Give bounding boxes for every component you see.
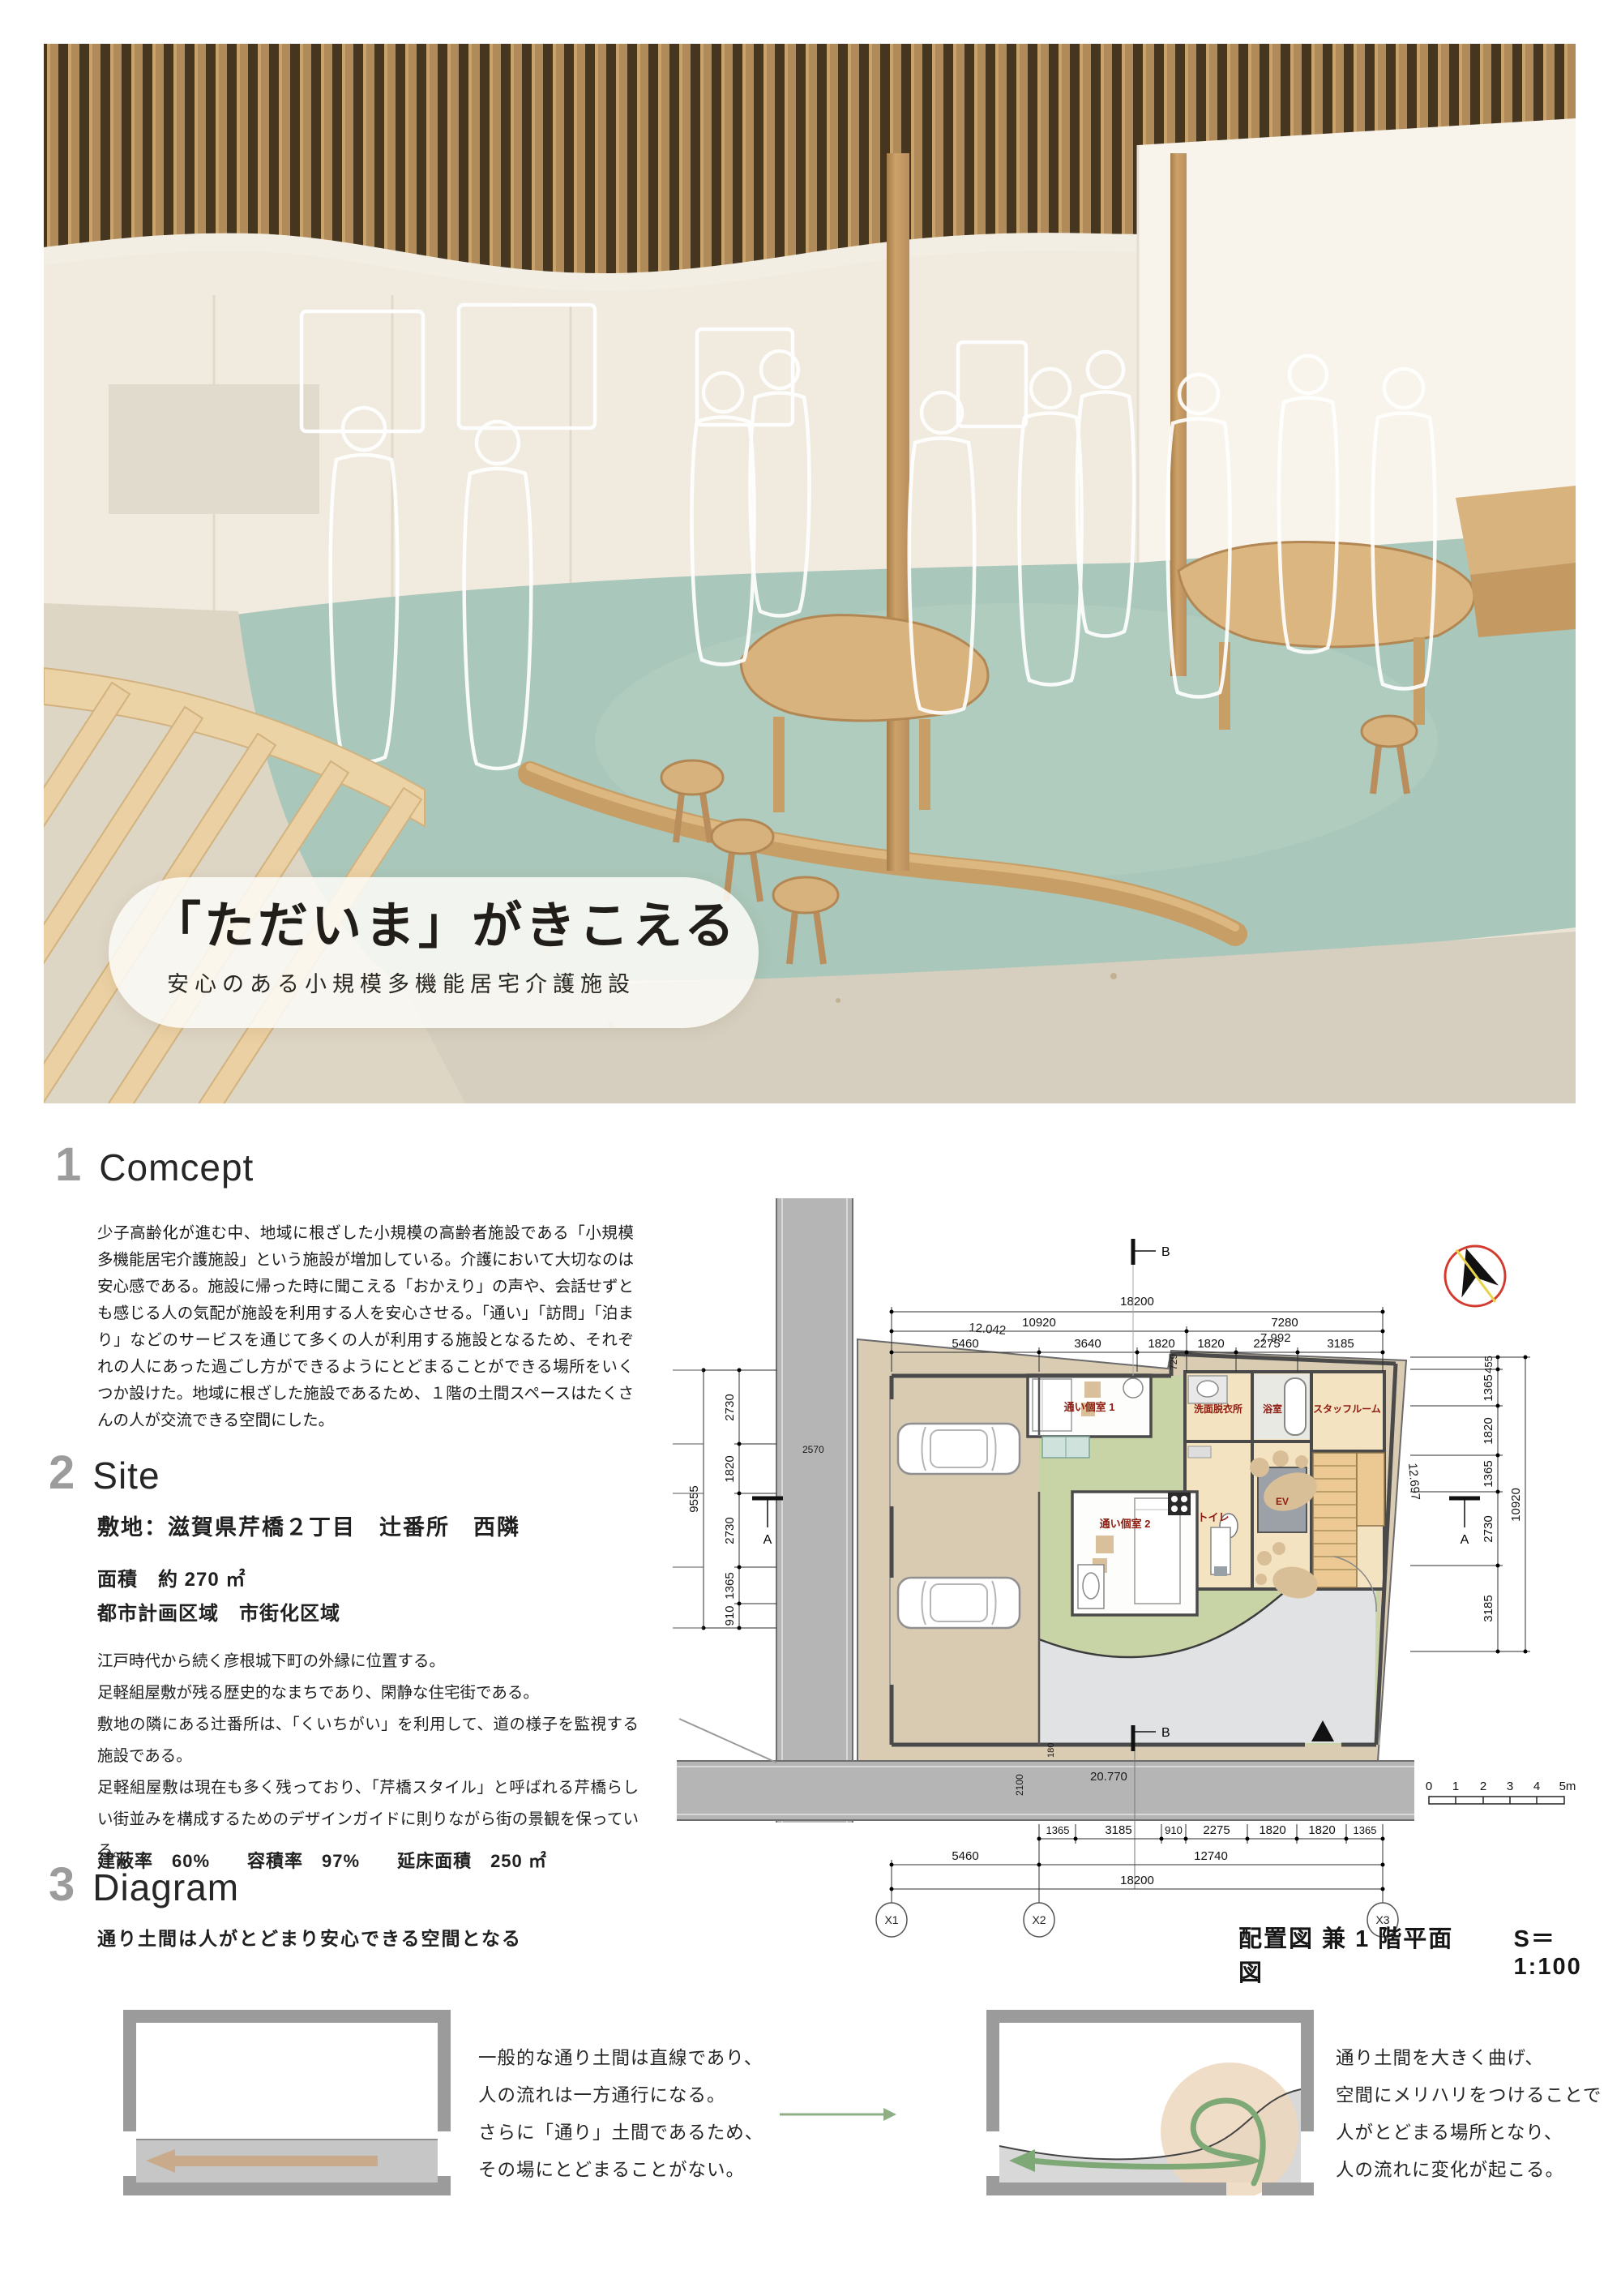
svg-text:455: 455: [1482, 1356, 1495, 1373]
diagram-number: 3: [49, 1861, 75, 1908]
svg-text:X1: X1: [884, 1913, 898, 1926]
concept-number: 1: [55, 1142, 81, 1189]
room-label: スタッフルーム: [1313, 1403, 1381, 1415]
svg-text:910: 910: [1165, 1824, 1183, 1836]
room-label: EV: [1276, 1496, 1289, 1507]
svg-text:2570: 2570: [802, 1444, 824, 1455]
svg-text:1820: 1820: [723, 1455, 737, 1482]
wall-panel: [109, 384, 319, 514]
svg-text:910: 910: [723, 1605, 737, 1626]
right-dim-labels: 455 1365 1820 1365 2730 3185 10920: [1482, 1356, 1523, 1622]
room-label: 通い個室 2: [1100, 1518, 1151, 1530]
svg-text:180: 180: [1046, 1743, 1056, 1758]
svg-text:1365: 1365: [1482, 1374, 1495, 1401]
site-body-line: 江戸時代から続く彦根城下町の外縁に位置する。: [97, 1646, 639, 1677]
diagram-title: Diagram: [92, 1865, 239, 1909]
room-label: トイレ: [1197, 1511, 1229, 1523]
diagram-heading: 3 Diagram: [49, 1861, 239, 1909]
plan-scale-text: S＝1:100: [1514, 1920, 1621, 1988]
svg-text:5m: 5m: [1559, 1780, 1576, 1793]
svg-text:12.697: 12.697: [1405, 1463, 1422, 1501]
wood-post: [887, 153, 909, 871]
left-dim-labels: 9555 2730 1820 2730 1365 910: [687, 1394, 737, 1626]
site-title: Site: [92, 1454, 160, 1497]
svg-text:5460: 5460: [952, 1337, 978, 1351]
svg-text:2730: 2730: [1482, 1515, 1495, 1542]
road-vertical: [776, 1198, 853, 1823]
concept-body: 少子高齢化が進む中、地域に根ざした小規模の高齢者施設である「小規模多機能居宅介護…: [97, 1220, 634, 1434]
svg-text:2275: 2275: [1253, 1337, 1280, 1351]
diagram-curved-doma: [986, 2010, 1314, 2195]
svg-text:2730: 2730: [723, 1517, 737, 1544]
north-arrow-icon: [1441, 1242, 1509, 1310]
bottom-dim-labels: 1365 3185 910 2275 1820 1820 1365 5460 1…: [952, 1823, 1376, 1887]
diagram-left-caption: 一般的な通り土間は直線であり、 人の流れは一方通行になる。 さらに「通り」土間で…: [478, 2040, 827, 2189]
svg-text:3185: 3185: [1482, 1595, 1495, 1621]
svg-text:1820: 1820: [1259, 1823, 1285, 1837]
svg-text:5460: 5460: [952, 1849, 978, 1863]
svg-text:4: 4: [1533, 1780, 1540, 1793]
wood-post: [1170, 153, 1187, 676]
site-area: 面積 約 270 ㎡: [97, 1563, 246, 1591]
bathtub: [1285, 1378, 1306, 1435]
cooktop: [1168, 1493, 1191, 1515]
site-zoning: 都市計画区域 市街化区域: [97, 1597, 340, 1626]
site-number: 2: [49, 1450, 75, 1497]
svg-text:1820: 1820: [1308, 1823, 1335, 1837]
svg-text:A: A: [1461, 1533, 1469, 1547]
svg-text:10920: 10920: [1022, 1316, 1056, 1330]
room-label: 洗面脱衣所: [1194, 1403, 1242, 1415]
svg-text:729: 729: [1168, 1354, 1179, 1370]
svg-text:18200: 18200: [1120, 1295, 1154, 1309]
room-label: 通い個室 1: [1064, 1401, 1115, 1413]
wood-counter: [1456, 486, 1576, 575]
svg-text:20.770: 20.770: [1090, 1770, 1127, 1784]
svg-text:0: 0: [1426, 1780, 1432, 1793]
section-marker-a-right: A: [1449, 1498, 1480, 1547]
poster-title: 「ただいま」がきこえる: [151, 902, 759, 952]
diagram-straight-doma: [123, 2010, 451, 2195]
svg-text:X2: X2: [1032, 1913, 1046, 1926]
svg-text:9555: 9555: [687, 1485, 701, 1512]
washbasin: [1123, 1378, 1143, 1398]
title-card: 「ただいま」がきこえる 安心のある小規模多機能居宅介護施設: [109, 877, 759, 1028]
site-body-line: 敷地の隣にある辻番所は、「くいちがい」を利用して、道の様子を監視する施設である。: [97, 1709, 639, 1772]
diagram-subtitle: 通り土間は人がとどまり安心できる空間となる: [97, 1923, 522, 1951]
svg-text:10920: 10920: [1509, 1488, 1523, 1522]
svg-text:2275: 2275: [1203, 1823, 1230, 1837]
diagram-right-caption: 通り土間を大きく曲げ、 空間にメリハリをつけることで 人がとどまる場所となり、 …: [1336, 2040, 1611, 2189]
concept-title: Comcept: [99, 1146, 254, 1189]
svg-text:1820: 1820: [1482, 1417, 1495, 1444]
svg-text:1365: 1365: [1046, 1824, 1070, 1836]
svg-text:3: 3: [1507, 1780, 1513, 1793]
svg-text:7280: 7280: [1271, 1316, 1298, 1330]
svg-text:B: B: [1161, 1726, 1170, 1740]
svg-text:2: 2: [1480, 1780, 1486, 1793]
room-label: 浴室: [1263, 1403, 1282, 1415]
svg-text:12.042: 12.042: [969, 1321, 1007, 1338]
washbasin: [1197, 1381, 1218, 1397]
plan-caption-text: 配置図 兼 1 階平面図: [1238, 1920, 1472, 1988]
road-horizontal: [677, 1761, 1414, 1820]
svg-text:1820: 1820: [1148, 1337, 1174, 1351]
plan-caption: 配置図 兼 1 階平面図 S＝1:100: [1238, 1920, 1621, 1988]
site-heading: 2 Site: [49, 1450, 160, 1497]
svg-text:3640: 3640: [1074, 1337, 1101, 1351]
svg-text:1: 1: [1452, 1780, 1459, 1793]
concept-heading: 1 Comcept: [55, 1142, 254, 1189]
svg-text:1365: 1365: [1354, 1824, 1377, 1836]
site-body: 江戸時代から続く彦根城下町の外縁に位置する。 足軽組屋敷が残る歴史的なまちであり…: [97, 1646, 639, 1867]
svg-text:3185: 3185: [1327, 1337, 1354, 1351]
svg-text:1365: 1365: [1482, 1460, 1495, 1487]
poster-page: 「ただいま」がきこえる 安心のある小規模多機能居宅介護施設 1 Comcept …: [0, 0, 1621, 2296]
svg-text:3185: 3185: [1105, 1823, 1131, 1837]
site-body-line: 足軽組屋敷が残る歴史的なまちであり、閑静な住宅街である。: [97, 1677, 639, 1709]
gathering-spot: [1161, 2063, 1298, 2195]
svg-text:A: A: [763, 1533, 772, 1547]
top-dim-labels: 18200 10920 7280 5460 3640 1820 1820 227…: [952, 1295, 1354, 1351]
svg-text:12740: 12740: [1194, 1849, 1228, 1863]
svg-text:18200: 18200: [1120, 1874, 1154, 1887]
svg-text:1365: 1365: [723, 1572, 737, 1599]
svg-text:2100: 2100: [1014, 1774, 1025, 1796]
svg-text:B: B: [1161, 1245, 1170, 1259]
scale-bar: 0 1 2 3 4 5m: [1426, 1780, 1576, 1804]
svg-text:2730: 2730: [723, 1394, 737, 1420]
poster-subtitle: 安心のある小規模多機能居宅介護施設: [167, 966, 759, 998]
svg-text:1820: 1820: [1197, 1337, 1224, 1351]
site-location: 敷地：滋賀県芹橋２丁目 辻番所 西隣: [97, 1510, 520, 1541]
